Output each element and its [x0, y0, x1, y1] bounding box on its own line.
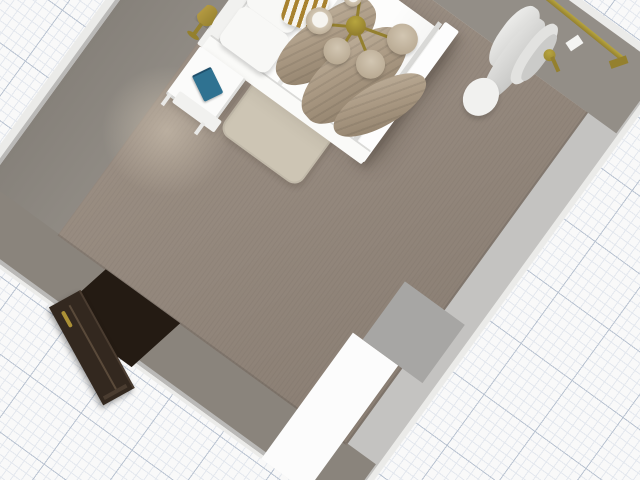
- chandelier-shade-globe: [340, 0, 365, 10]
- curtain-rod-bracket: [609, 55, 629, 68]
- curtain-tieback-bar: [550, 56, 560, 72]
- chandelier-hub: [342, 12, 370, 40]
- chandelier-shade-globe: [300, 2, 338, 40]
- floor-planner-viewport: [0, 0, 640, 480]
- chandelier-shade: [350, 44, 391, 85]
- teal-book[interactable]: [192, 67, 224, 102]
- door-handle: [61, 310, 73, 328]
- curtain-clip: [565, 35, 583, 52]
